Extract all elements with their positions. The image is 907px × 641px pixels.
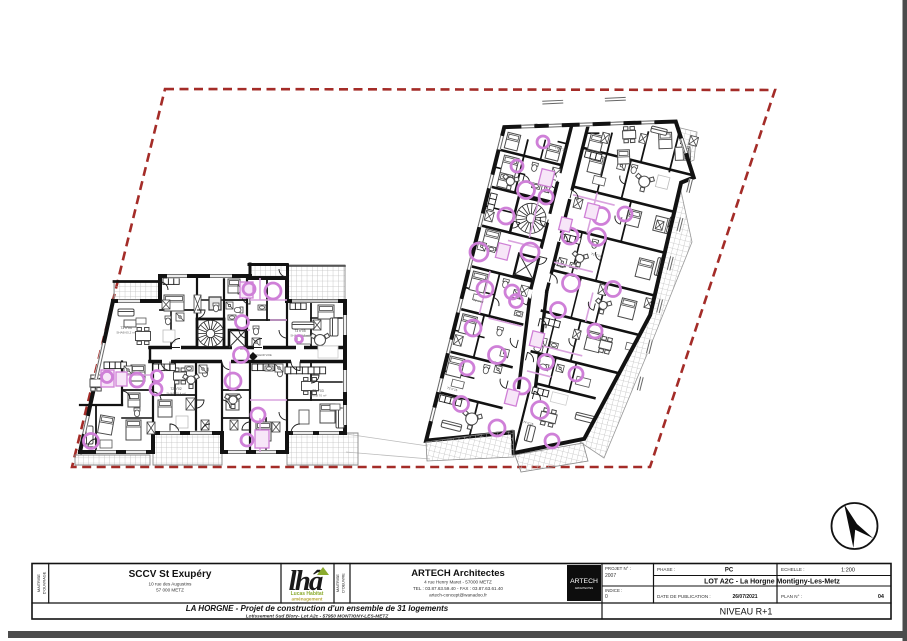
svg-text:T3 n°05: T3 n°05 xyxy=(294,329,305,333)
svg-text:ARCHITECTES: ARCHITECTES xyxy=(575,586,594,590)
svg-text:1:200: 1:200 xyxy=(841,568,855,574)
svg-text:ARTECH Architectes: ARTECH Architectes xyxy=(411,568,505,579)
svg-text:TEL : 03.87.63.59.40 - FAX : 0: TEL : 03.87.63.59.40 - FAX : 03.87.63.61… xyxy=(413,586,503,591)
svg-text:aménagement: aménagement xyxy=(292,597,323,602)
svg-text:0: 0 xyxy=(605,594,608,600)
svg-text:SCCV St Exupéry: SCCV St Exupéry xyxy=(129,569,212,580)
svg-text:10 rue des Augustins: 10 rue des Augustins xyxy=(149,582,193,587)
svg-text:NIVEAU R+1: NIVEAU R+1 xyxy=(720,607,773,617)
svg-text:SHAB 50,4 m²: SHAB 50,4 m² xyxy=(166,392,185,396)
svg-text:INDICE :: INDICE : xyxy=(605,588,622,593)
svg-text:T2 n°02: T2 n°02 xyxy=(170,387,181,391)
svg-text:D'OUVRAGE: D'OUVRAGE xyxy=(43,571,47,594)
svg-text:MAITRISE: MAITRISE xyxy=(37,574,41,592)
svg-text:57 000 METZ: 57 000 METZ xyxy=(156,588,184,593)
svg-text:LOT A2C - La Horgne Montigny-L: LOT A2C - La Horgne Montigny-Les-Metz xyxy=(704,579,840,586)
svg-text:T3 n°03: T3 n°03 xyxy=(312,389,323,393)
svg-text:2007: 2007 xyxy=(605,573,616,579)
svg-text:SHAB 70 m²: SHAB 70 m² xyxy=(310,394,327,398)
svg-text:ECHELLE :: ECHELLE : xyxy=(781,567,805,572)
svg-text:26/07/2021: 26/07/2021 xyxy=(732,594,757,600)
svg-text:artech-concept@wanadoo.fr: artech-concept@wanadoo.fr xyxy=(429,593,487,598)
svg-text:04: 04 xyxy=(878,594,885,600)
svg-text:4 rue Henry Maret - 57000 METZ: 4 rue Henry Maret - 57000 METZ xyxy=(424,580,492,585)
svg-text:D'OEUVRE: D'OEUVRE xyxy=(342,573,346,593)
svg-text:T3 n°04: T3 n°04 xyxy=(120,326,131,330)
svg-text:DATE DE PUBLICATION :: DATE DE PUBLICATION : xyxy=(657,594,711,599)
svg-text:ARTECH: ARTECH xyxy=(570,578,598,585)
svg-text:PROJET N° :: PROJET N° : xyxy=(605,566,631,571)
svg-text:LA HORGNE - Projet de construc: LA HORGNE - Projet de construction d'un … xyxy=(186,604,449,613)
svg-text:PC: PC xyxy=(725,568,734,574)
svg-text:SHAB 65,2 m²: SHAB 65,2 m² xyxy=(116,331,135,335)
svg-text:PLAN N° :: PLAN N° : xyxy=(781,594,802,599)
svg-text:Lotissement Sud Blory- Lot A2c: Lotissement Sud Blory- Lot A2c - 57950 M… xyxy=(246,614,390,620)
svg-text:MAITRISE: MAITRISE xyxy=(336,574,340,592)
svg-text:PHASE :: PHASE : xyxy=(657,567,675,572)
